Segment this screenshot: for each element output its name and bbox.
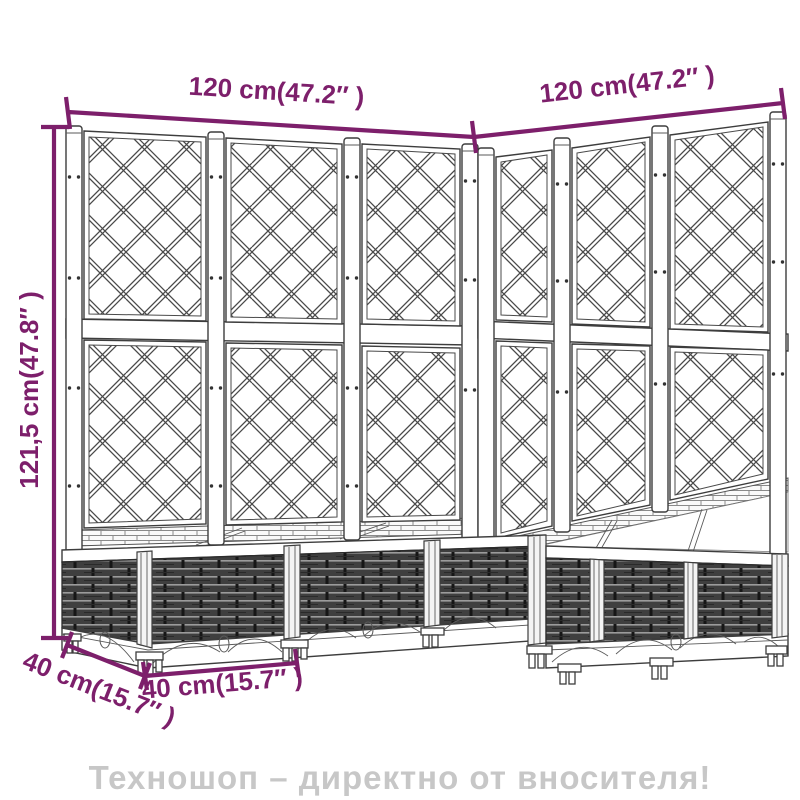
- dimension-label-box-width: 40 cm(15.7″ ): [141, 661, 304, 704]
- dimension-height: 121,5 cm(47.8″ ): [14, 127, 68, 638]
- product-image-canvas: 120 cm(47.2″ ) 120 cm(47.2″ ) 121,5 cm(4…: [0, 0, 800, 800]
- dimension-label-width-left: 120 cm(47.2″ ): [188, 71, 365, 112]
- watermark-text: Техношоп – директно от вносителя!: [89, 759, 712, 796]
- trellis-left-wall: [66, 126, 478, 552]
- dimension-label-height: 121,5 cm(47.8″ ): [14, 291, 44, 488]
- dimension-label-width-right: 120 cm(47.2″ ): [538, 60, 716, 109]
- planter-boxes: [62, 535, 788, 684]
- product-diagram: 120 cm(47.2″ ) 120 cm(47.2″ ) 121,5 cm(4…: [0, 0, 800, 800]
